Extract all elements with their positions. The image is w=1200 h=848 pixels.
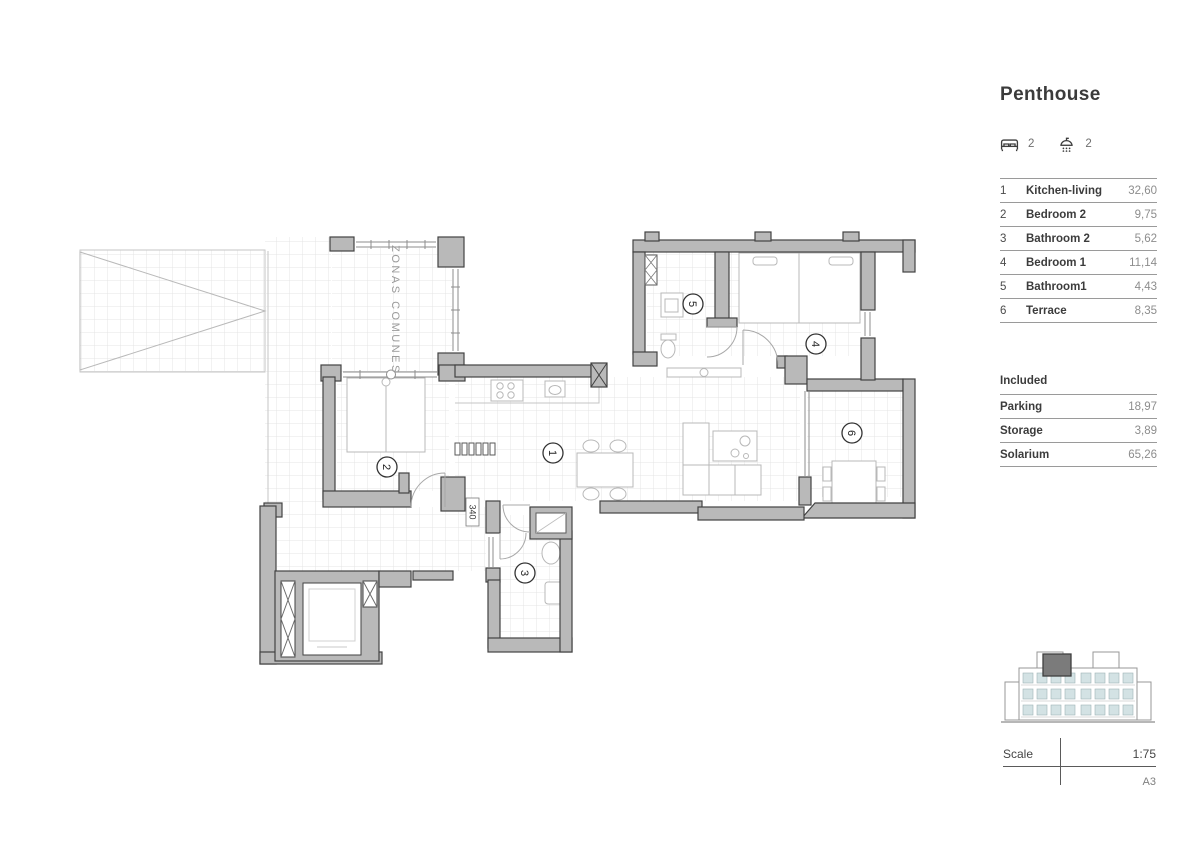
highlighted-unit bbox=[1043, 654, 1071, 676]
hall-console bbox=[667, 368, 741, 377]
table-row: 3 Bathroom 2 5,62 bbox=[1000, 227, 1157, 251]
room-number-3: 3 bbox=[515, 563, 535, 583]
table-row: 2 Bedroom 2 9,75 bbox=[1000, 203, 1157, 227]
room-number-6: 6 bbox=[842, 423, 862, 443]
svg-text:3: 3 bbox=[518, 570, 530, 576]
bed-icon bbox=[1000, 136, 1019, 152]
bed-2 bbox=[347, 378, 425, 452]
included-section: Included Parking 18,97 Storage 3,89 Sola… bbox=[1000, 375, 1157, 467]
floor-plan: ZONAS COMUNES 340 1 2 3 4 5 bbox=[55, 215, 935, 675]
included-row: Storage 3,89 bbox=[1000, 419, 1157, 443]
included-heading: Included bbox=[1000, 375, 1157, 395]
coffee-table bbox=[713, 431, 757, 461]
legend-panel: Penthouse 2 2 1 K bbox=[1000, 84, 1157, 467]
table-row: 6 Terrace 8,35 bbox=[1000, 299, 1157, 323]
page: ZONAS COMUNES 340 1 2 3 4 5 bbox=[0, 0, 1200, 848]
terrace-set bbox=[823, 461, 885, 503]
page-title: Penthouse bbox=[1000, 84, 1157, 106]
table-row: 4 Bedroom 1 11,14 bbox=[1000, 251, 1157, 275]
included-row: Solarium 65,26 bbox=[1000, 443, 1157, 467]
svg-text:4: 4 bbox=[809, 341, 821, 347]
building-elevation-thumbnail bbox=[1001, 640, 1155, 730]
bedrooms-count: 2 bbox=[1028, 138, 1034, 150]
scale-row: Scale 1:75 bbox=[1003, 742, 1156, 767]
bathrooms-count: 2 bbox=[1085, 138, 1091, 150]
scale-block: Scale 1:75 A3 bbox=[1003, 742, 1156, 788]
room-number-2: 2 bbox=[377, 457, 397, 477]
room-number-5: 5 bbox=[683, 294, 703, 314]
svg-text:2: 2 bbox=[380, 464, 392, 470]
scale-label: Scale bbox=[1003, 747, 1033, 761]
sheet-size: A3 bbox=[1003, 776, 1156, 788]
svg-text:5: 5 bbox=[686, 301, 698, 307]
table-row: 5 Bathroom1 4,43 bbox=[1000, 275, 1157, 299]
included-row: Parking 18,97 bbox=[1000, 395, 1157, 419]
room-number-4: 4 bbox=[806, 334, 826, 354]
dimension-label: 340 bbox=[467, 504, 477, 519]
svg-text:6: 6 bbox=[845, 430, 857, 436]
scale-divider bbox=[1060, 738, 1061, 785]
bed-1 bbox=[739, 253, 860, 323]
room-number-1: 1 bbox=[543, 443, 563, 463]
scale-value: 1:75 bbox=[1133, 747, 1156, 761]
shower-icon bbox=[1057, 136, 1076, 153]
zonas-comunes-label: ZONAS COMUNES bbox=[389, 245, 401, 375]
svg-text:1: 1 bbox=[546, 450, 558, 456]
table-row: 1 Kitchen-living 32,60 bbox=[1000, 179, 1157, 203]
rooms-table: 1 Kitchen-living 32,60 2 Bedroom 2 9,75 … bbox=[1000, 178, 1157, 323]
windows-grid bbox=[1023, 673, 1133, 715]
features-row: 2 2 bbox=[1000, 134, 1157, 154]
